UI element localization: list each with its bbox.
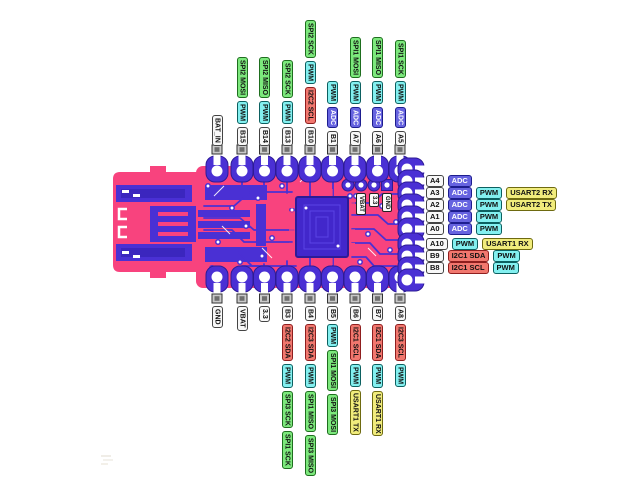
pin-name-tag: B4: [305, 306, 316, 321]
pin-function-tag-usart: USART1 RX: [482, 238, 533, 250]
pin-name-tag: A1: [426, 211, 444, 223]
pin-column-A8: A8I2C3 SCLPWM: [388, 306, 412, 480]
pin-function-tag-pwm: PWM: [476, 199, 502, 211]
pin-column-B6: B6I2C1 SCLPWMUSART1 TX: [343, 306, 367, 480]
pin-function-tag-i2c: I2C3 SCL: [395, 324, 406, 361]
pin-column-GND: GND: [205, 306, 229, 480]
onboard-label-3.3: 3.3: [369, 193, 379, 207]
pin-function-tag-spi: SPI2 SCK: [282, 60, 293, 98]
pin-name-tag: GND: [212, 306, 223, 328]
pin-function-tag-adc: ADC: [448, 211, 472, 223]
pin-name-tag: B9: [426, 250, 444, 262]
pin-function-tag-pwm: PWM: [476, 211, 502, 223]
pin-column-B13: SPI2 SCKPWMB13: [275, 0, 299, 146]
pin-column-A6: SPI1 MISOPWMADCA6: [366, 0, 390, 146]
pin-column-BAT_IN: BAT_IN: [205, 0, 229, 146]
pin-name-tag: A10: [426, 238, 448, 250]
via: [358, 260, 362, 264]
pin-column-A7: SPI1 MOSIPWMADCA7: [343, 0, 367, 146]
via: [238, 260, 242, 264]
pin-function-tag-i2c: I2C1 SCL: [350, 324, 361, 361]
pin-function-tag-pwm: PWM: [452, 238, 478, 250]
pin-function-tag-adc: ADC: [350, 107, 361, 128]
pin-function-tag-spi: SPI2 MISO: [259, 57, 270, 98]
pinout-diagram: BAT_INSPI2 MOSIPWMB15SPI2 MISOPWMB14SPI2…: [0, 0, 640, 480]
pin-function-tag-usart: USART1 RX: [372, 391, 383, 437]
via: [394, 220, 398, 224]
pin-name-tag: B8: [426, 262, 444, 274]
pin-function-tag-spi: SPI1 MISO: [305, 391, 316, 432]
via: [260, 254, 264, 258]
pin-name-tag: A0: [426, 223, 444, 235]
pin-row-A0: A0ADCPWM: [426, 223, 502, 236]
pin-function-tag-pwm: PWM: [395, 364, 406, 387]
onboard-label-VBAT: VBAT: [356, 193, 366, 215]
pin-function-tag-i2c: I2C3 SDA: [305, 324, 316, 362]
pin-column-B7: B7I2C1 SDAPWMUSART1 RX: [366, 306, 390, 480]
via: [388, 248, 392, 252]
pin-function-tag-spi: SPI1 MOSI: [327, 350, 338, 391]
pin-function-tag-usart: USART2 TX: [506, 199, 556, 211]
via: [256, 196, 260, 200]
pin-column-B14: SPI2 MISOPWMB14: [253, 0, 277, 146]
pin-column-3.3: 3.3: [253, 306, 277, 480]
mcu-chip: [289, 189, 355, 265]
pin-function-tag-spi: SPI3 MISO: [305, 435, 316, 476]
pin-function-tag-pwm: PWM: [305, 364, 316, 387]
pin-name-tag: A3: [426, 187, 444, 199]
pin-name-tag: VBAT: [237, 306, 248, 331]
pin-function-tag-pwm: PWM: [372, 81, 383, 104]
via: [244, 224, 248, 228]
via: [206, 184, 210, 188]
pin-function-tag-pwm: PWM: [259, 101, 270, 124]
pin-name-tag: A8: [395, 306, 406, 321]
pin-column-VBAT: VBAT: [230, 306, 254, 480]
pin-column-B5: B5PWMSPI1 MOSISPI3 MOSI: [321, 306, 345, 480]
pin-column-B3: B3I2C2 SDAPWMSPI3 SCKSPI1 SCK: [275, 306, 299, 480]
pin-function-tag-i2c: I2C2 SCL: [305, 87, 316, 124]
pin-function-tag-adc: ADC: [448, 199, 472, 211]
pin-function-tag-adc: ADC: [327, 107, 338, 128]
pin-function-tag-pwm: PWM: [282, 101, 293, 124]
pin-function-tag-pwm: PWM: [476, 223, 502, 235]
via: [216, 240, 220, 244]
pin-function-tag-spi: SPI3 SCK: [282, 391, 293, 429]
pin-function-tag-adc: ADC: [448, 187, 472, 199]
pin-function-tag-adc: ADC: [448, 175, 472, 187]
pin-function-tag-pwm: PWM: [476, 187, 502, 199]
pin-function-tag-pwm: PWM: [372, 364, 383, 387]
pin-column-B1: PWMADCB1: [321, 0, 345, 146]
pin-function-tag-pwm: PWM: [305, 61, 316, 84]
via: [270, 236, 274, 240]
pin-function-tag-adc: ADC: [395, 107, 406, 128]
pin-name-tag: B13: [282, 127, 293, 146]
pin-name-tag: B6: [350, 306, 361, 321]
pin-function-tag-i2c: I2C2 SDA: [282, 324, 293, 362]
pin-function-tag-spi: SPI1 MOSI: [350, 37, 361, 78]
via: [366, 232, 370, 236]
pin-function-tag-pwm: PWM: [327, 324, 338, 347]
pin-name-tag: B15: [237, 127, 248, 146]
pin-name-tag: A7: [350, 131, 361, 146]
pin-row-B8: B8I2C1 SCLPWM: [426, 262, 519, 275]
pin-function-tag-pwm: PWM: [327, 81, 338, 104]
pin-name-tag: 3.3: [259, 306, 270, 322]
pin-function-tag-i2c: I2C1 SDA: [448, 250, 490, 262]
pin-name-tag: A5: [395, 131, 406, 146]
pin-function-tag-spi: SPI2 MOSI: [237, 57, 248, 98]
pin-function-tag-spi: SPI1 SCK: [395, 40, 406, 78]
via: [230, 206, 234, 210]
onboard-label-GND: GND: [382, 193, 392, 212]
pin-function-tag-usart: USART1 TX: [350, 390, 361, 435]
pin-column-A5: SPI1 SCKPWMADCA5: [388, 0, 412, 146]
pin-name-tag: BAT_IN: [212, 115, 223, 146]
pin-function-tag-pwm: PWM: [282, 364, 293, 387]
pin-function-tag-i2c: I2C1 SCL: [448, 262, 489, 274]
pin-name-tag: B1: [327, 131, 338, 146]
watermark: [98, 452, 118, 468]
pin-name-tag: B5: [327, 306, 338, 321]
pin-name-tag: B7: [372, 306, 383, 321]
pin-function-tag-adc: ADC: [372, 107, 383, 128]
pin-column-B4: B4I2C3 SDAPWMSPI1 MISOSPI3 MISO: [298, 306, 322, 480]
via: [280, 184, 284, 188]
pin-name-tag: A6: [372, 131, 383, 146]
pin-column-B15: SPI2 MOSIPWMB15: [230, 0, 254, 146]
pin-function-tag-i2c: I2C1 SDA: [372, 324, 383, 362]
pin-name-tag: B10: [305, 127, 316, 146]
pin-function-tag-pwm: PWM: [395, 81, 406, 104]
pin-function-tag-usart: USART2 RX: [506, 187, 557, 199]
pin-function-tag-adc: ADC: [448, 223, 472, 235]
pin-function-tag-pwm: PWM: [237, 101, 248, 124]
pin-function-tag-spi: SPI1 MISO: [372, 37, 383, 78]
pin-function-tag-pwm: PWM: [493, 250, 519, 262]
pin-function-tag-pwm: PWM: [493, 262, 519, 274]
pin-function-tag-spi: SPI1 SCK: [282, 431, 293, 469]
pin-function-tag-pwm: PWM: [350, 81, 361, 104]
pin-name-tag: A4: [426, 175, 444, 187]
pin-name-tag: B3: [282, 306, 293, 321]
pin-function-tag-spi: SPI3 MOSI: [327, 394, 338, 435]
pin-column-B10: SPI2 SCKPWMI2C2 SCLB10: [298, 0, 322, 146]
pin-name-tag: A2: [426, 199, 444, 211]
pin-name-tag: B14: [259, 127, 270, 146]
pin-function-tag-spi: SPI2 SCK: [305, 20, 316, 58]
pin-function-tag-pwm: PWM: [350, 364, 361, 387]
